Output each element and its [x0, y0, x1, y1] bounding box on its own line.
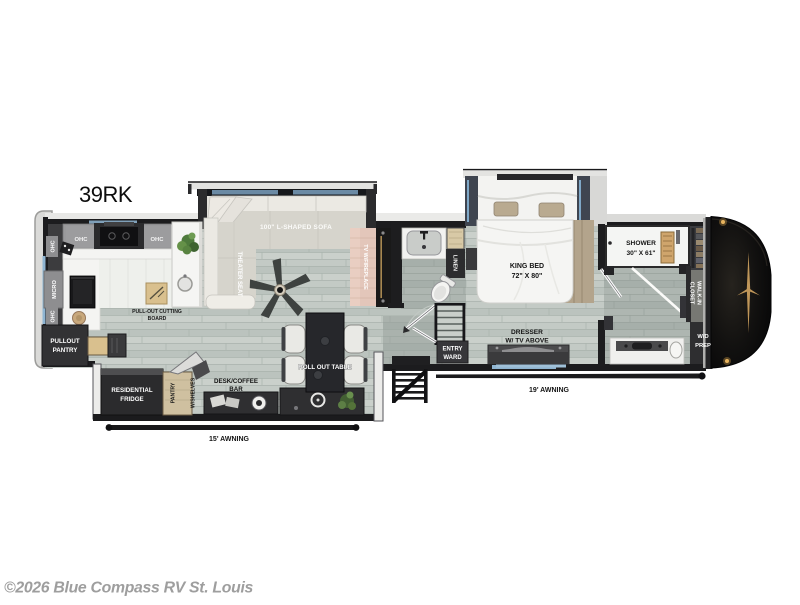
svg-text:FRIDGE: FRIDGE: [120, 396, 143, 403]
svg-text:OHC: OHC: [75, 237, 89, 243]
svg-text:ROLL OUT TABLE: ROLL OUT TABLE: [298, 364, 351, 371]
svg-text:CLOSET: CLOSET: [689, 282, 695, 305]
svg-text:PANTRY: PANTRY: [171, 382, 177, 403]
svg-text:TV W/FIREPLACE: TV W/FIREPLACE: [362, 244, 368, 290]
svg-text:WALK-IN: WALK-IN: [696, 281, 702, 305]
svg-text:30" X 61": 30" X 61": [627, 250, 656, 257]
svg-text:DESK/COFFEE: DESK/COFFEE: [214, 378, 258, 385]
svg-text:W/D: W/D: [697, 334, 708, 340]
svg-text:MICRO: MICRO: [52, 280, 58, 299]
svg-text:©2026 Blue Compass RV St. Loui: ©2026 Blue Compass RV St. Louis: [4, 580, 254, 597]
svg-text:100" L-SHAPED SOFA: 100" L-SHAPED SOFA: [260, 224, 332, 231]
svg-text:15' AWNING: 15' AWNING: [209, 436, 249, 443]
svg-text:DRESSER: DRESSER: [511, 329, 543, 336]
svg-text:BOARD: BOARD: [148, 316, 167, 322]
svg-text:W/ TV ABOVE: W/ TV ABOVE: [505, 338, 549, 345]
svg-text:PANTRY: PANTRY: [53, 347, 79, 354]
svg-text:39RK: 39RK: [79, 182, 133, 207]
svg-text:THEATER SEAT: THEATER SEAT: [236, 251, 242, 296]
svg-text:PULLOUT: PULLOUT: [50, 338, 79, 345]
svg-text:WARD: WARD: [443, 355, 462, 361]
svg-text:LINEN: LINEN: [452, 255, 458, 271]
svg-text:PULL-OUT CUTTING: PULL-OUT CUTTING: [132, 309, 182, 315]
svg-text:19' AWNING: 19' AWNING: [529, 387, 569, 394]
svg-text:KING BED: KING BED: [510, 263, 544, 270]
svg-text:72" X 80": 72" X 80": [512, 273, 543, 280]
svg-text:ENTRY: ENTRY: [442, 347, 462, 353]
svg-text:W/SHELVES: W/SHELVES: [191, 377, 197, 408]
svg-text:OHC: OHC: [51, 310, 57, 322]
svg-text:OHC: OHC: [151, 237, 165, 243]
svg-text:OHC: OHC: [51, 240, 57, 252]
svg-text:PREP: PREP: [695, 343, 711, 349]
svg-text:SHOWER: SHOWER: [626, 240, 656, 247]
svg-text:RESIDENTIAL: RESIDENTIAL: [111, 387, 152, 394]
